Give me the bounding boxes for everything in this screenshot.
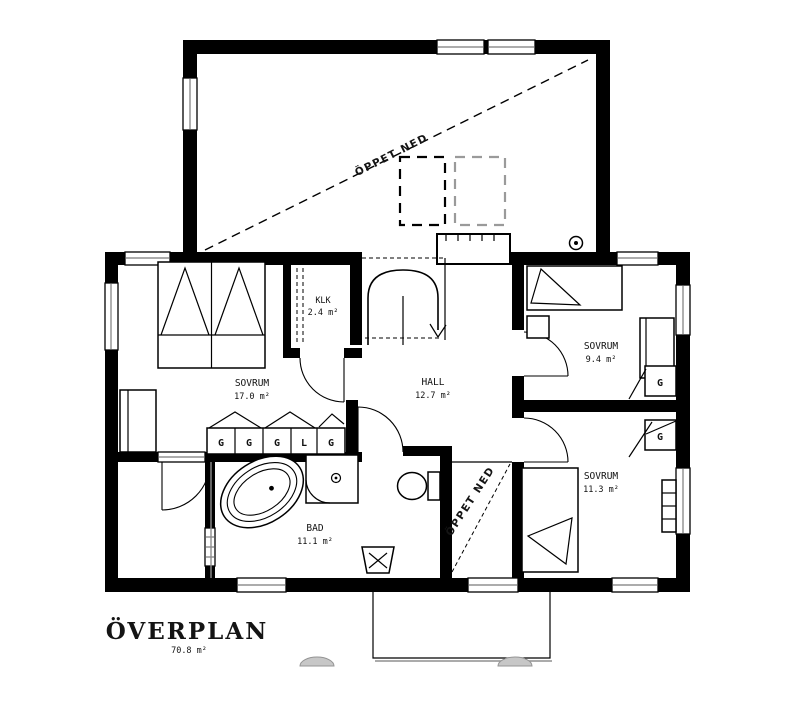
wardrobe-letter-2: G [246, 438, 252, 449]
single-bed-ne [527, 266, 622, 310]
room-sovrum-se: G SOVRUM 11.3 m² [522, 420, 676, 572]
balcony-exterior [300, 592, 552, 666]
room-area-bad: 11.1 m² [297, 537, 333, 547]
roof-opening-dashed-right [455, 157, 505, 225]
title-block: ÖVERPLAN 70.8 m² [106, 617, 268, 656]
room-area-klk: 2.4 m² [308, 308, 339, 318]
cabinet-right-top: G [629, 366, 676, 399]
wardrobe-row: G G G L G [207, 412, 345, 454]
open-below-label-upper: ÖPPET NED [352, 130, 430, 179]
room-area-hall: 12.7 m² [415, 391, 451, 401]
room-label-bad: BAD [306, 523, 323, 534]
room-sovrum-ne: G SOVRUM 9.4 m² [527, 266, 676, 399]
floorplan-drawing: ÖPPET NED [0, 0, 800, 711]
open-area-above: ÖPPET NED [205, 60, 588, 264]
staircase [358, 258, 446, 345]
room-label-hall: HALL [422, 377, 445, 388]
roof-opening-dashed-left [400, 157, 445, 225]
wardrobe-letter-5: G [328, 438, 334, 449]
room-label-klk: KLK [315, 296, 331, 306]
wardrobe-letter-1: G [218, 438, 224, 449]
plan-title: ÖVERPLAN [106, 617, 268, 645]
floorplan-image: ÖPPET NED [0, 0, 800, 711]
dresser [120, 390, 156, 452]
cabinet-letter-bottom: G [657, 432, 663, 443]
room-label-sovrum-large: SOVRUM [235, 378, 270, 389]
wardrobe-letter-3: G [274, 438, 280, 449]
exterior-step-left [300, 657, 334, 666]
single-bed-se [522, 468, 578, 572]
cabinet-letter-top: G [657, 378, 663, 389]
radiator-se [662, 480, 676, 532]
door-klk [300, 358, 344, 402]
toilet [398, 472, 441, 500]
room-area-sovrum-ne: 9.4 m² [586, 355, 617, 365]
door-sovrum-se [524, 418, 568, 462]
open-below-strip: ÖPPET NED [442, 462, 512, 572]
room-hall: HALL 12.7 m² [415, 377, 451, 401]
room-klk: KLK 2.4 m² [297, 268, 338, 345]
room-label-sovrum-ne: SOVRUM [584, 341, 619, 352]
chimney [437, 234, 510, 264]
vent-symbol [570, 237, 583, 250]
cabinet-right-bottom: G [629, 420, 676, 457]
double-bed [158, 262, 265, 368]
room-area-sovrum-large: 17.0 m² [234, 392, 270, 402]
nightstand-ne [527, 316, 549, 338]
plan-total-area: 70.8 m² [171, 646, 207, 656]
shower [306, 455, 358, 503]
door-balcony [158, 452, 210, 510]
door-bad [358, 407, 403, 452]
sink [362, 547, 394, 573]
room-sovrum-large: G G G L G SOVRUM 17.0 m² [120, 262, 345, 454]
room-label-sovrum-se: SOVRUM [584, 471, 619, 482]
room-area-sovrum-se: 11.3 m² [583, 485, 619, 495]
wardrobe-letter-4: L [301, 438, 307, 449]
